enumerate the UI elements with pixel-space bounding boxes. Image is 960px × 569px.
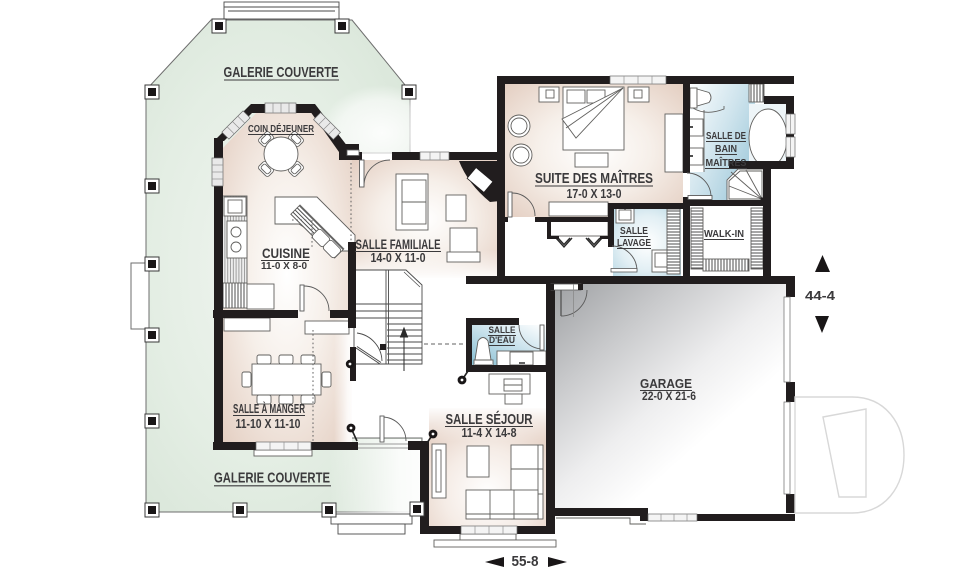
svg-text:22-0 X 21-6: 22-0 X 21-6 — [642, 389, 696, 403]
svg-text:SUITE DES MAÎTRES: SUITE DES MAÎTRES — [535, 169, 653, 187]
svg-text:LAVAGE: LAVAGE — [617, 238, 651, 249]
svg-text:GALERIE COUVERTE: GALERIE COUVERTE — [224, 64, 339, 81]
svg-text:COIN DÉJEUNER: COIN DÉJEUNER — [248, 122, 315, 135]
svg-text:D'EAU: D'EAU — [489, 335, 515, 346]
svg-text:BAIN: BAIN — [715, 144, 737, 155]
svg-text:11-0 X 8-0: 11-0 X 8-0 — [261, 260, 307, 272]
svg-text:GALERIE COUVERTE: GALERIE COUVERTE — [214, 470, 330, 487]
svg-text:CUISINE: CUISINE — [262, 246, 310, 261]
svg-text:SALLE: SALLE — [620, 226, 648, 237]
svg-text:55-8: 55-8 — [512, 553, 539, 569]
svg-text:14-0 X 11-0: 14-0 X 11-0 — [371, 251, 426, 265]
svg-text:SALLE À MANGER: SALLE À MANGER — [233, 401, 305, 416]
svg-text:SALLE FAMILIALE: SALLE FAMILIALE — [356, 237, 441, 252]
svg-text:SALLE DE: SALLE DE — [706, 131, 746, 142]
svg-text:MAÎTRES: MAÎTRES — [706, 156, 747, 169]
svg-text:17-0 X 13-0: 17-0 X 13-0 — [567, 186, 622, 201]
svg-text:11-4 X 14-8: 11-4 X 14-8 — [462, 426, 517, 440]
svg-text:44-4: 44-4 — [805, 288, 836, 303]
svg-text:WALK-IN: WALK-IN — [704, 228, 744, 240]
svg-text:11-10 X 11-10: 11-10 X 11-10 — [236, 417, 301, 431]
